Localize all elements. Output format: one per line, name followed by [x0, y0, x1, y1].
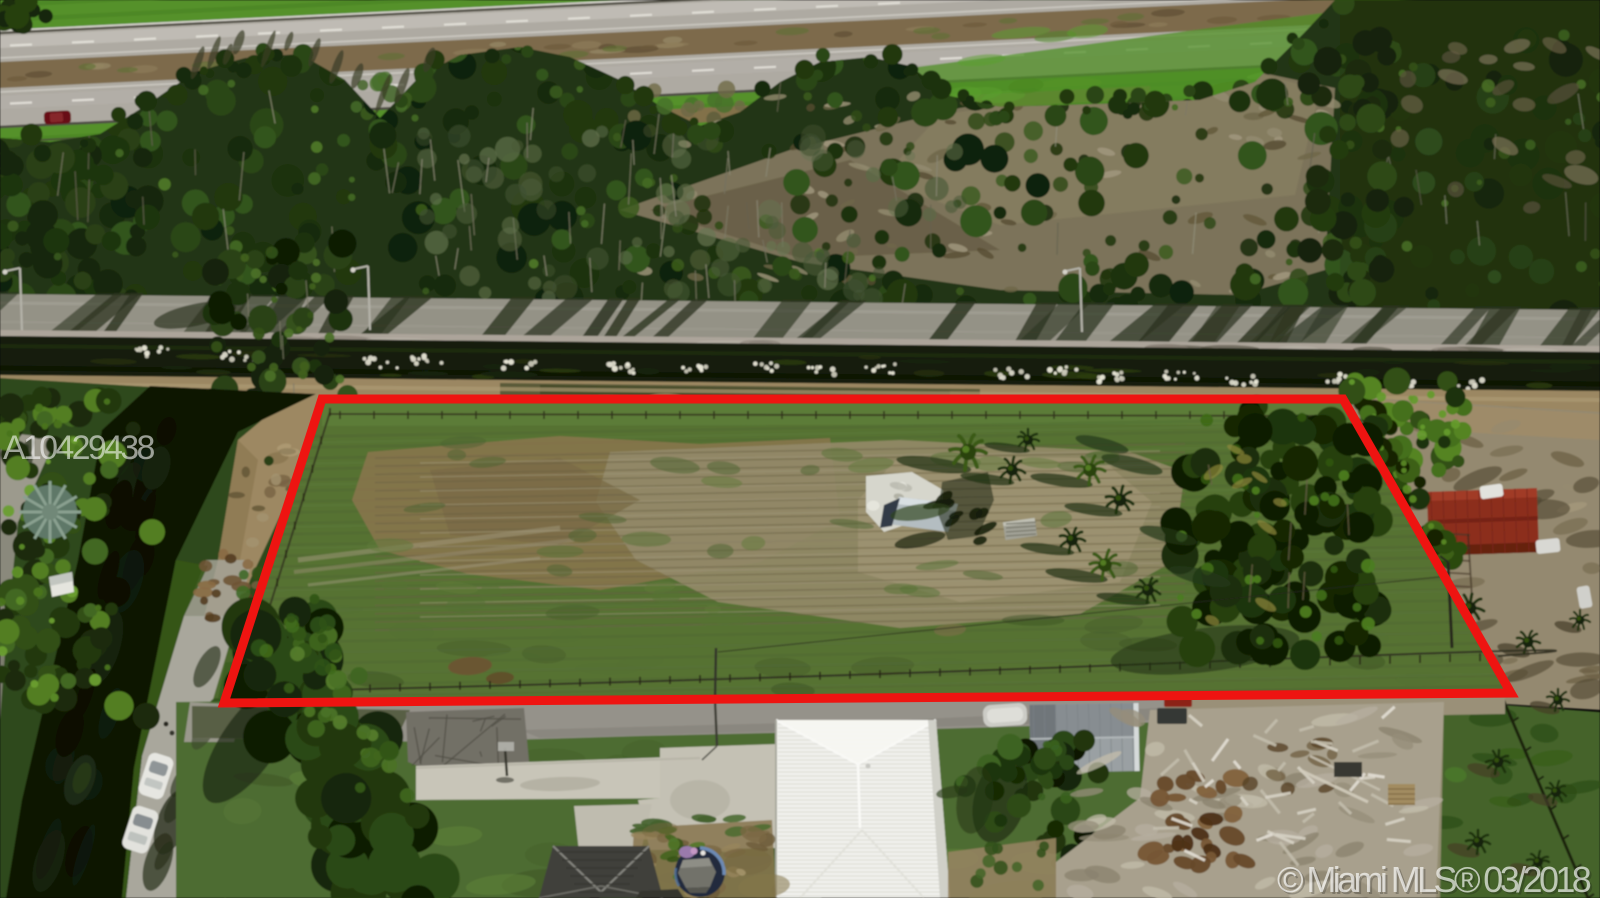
- svg-text:A10429438: A10429438: [3, 429, 154, 467]
- svg-text:© Miami MLS® 03/2018: © Miami MLS® 03/2018: [1277, 859, 1591, 898]
